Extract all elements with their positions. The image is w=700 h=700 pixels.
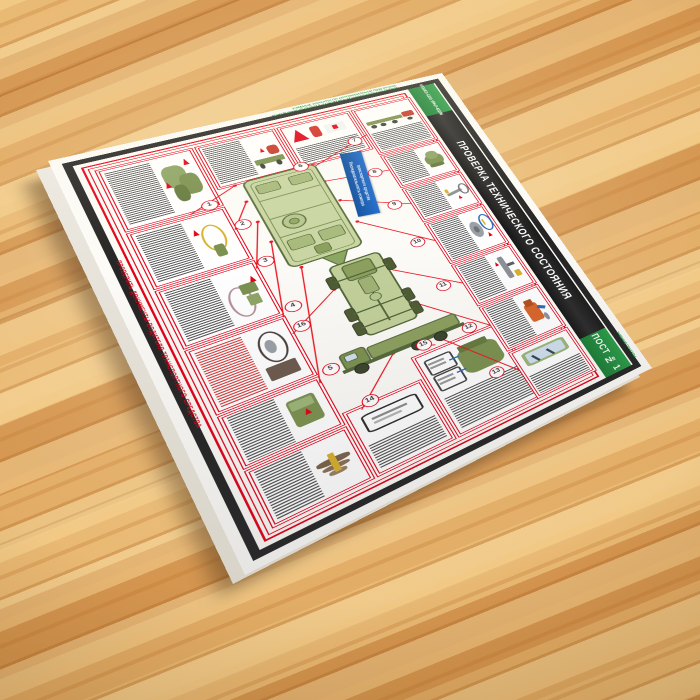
photo-scene: УЧЕБНЫЕ ПЛАКАТЫ ПО АВТОМОБИЛЬНОЙ ПОДГОТО… xyxy=(0,0,700,700)
poster: УЧЕБНЫЕ ПЛАКАТЫ ПО АВТОМОБИЛЬНОЙ ПОДГОТО… xyxy=(48,73,652,575)
